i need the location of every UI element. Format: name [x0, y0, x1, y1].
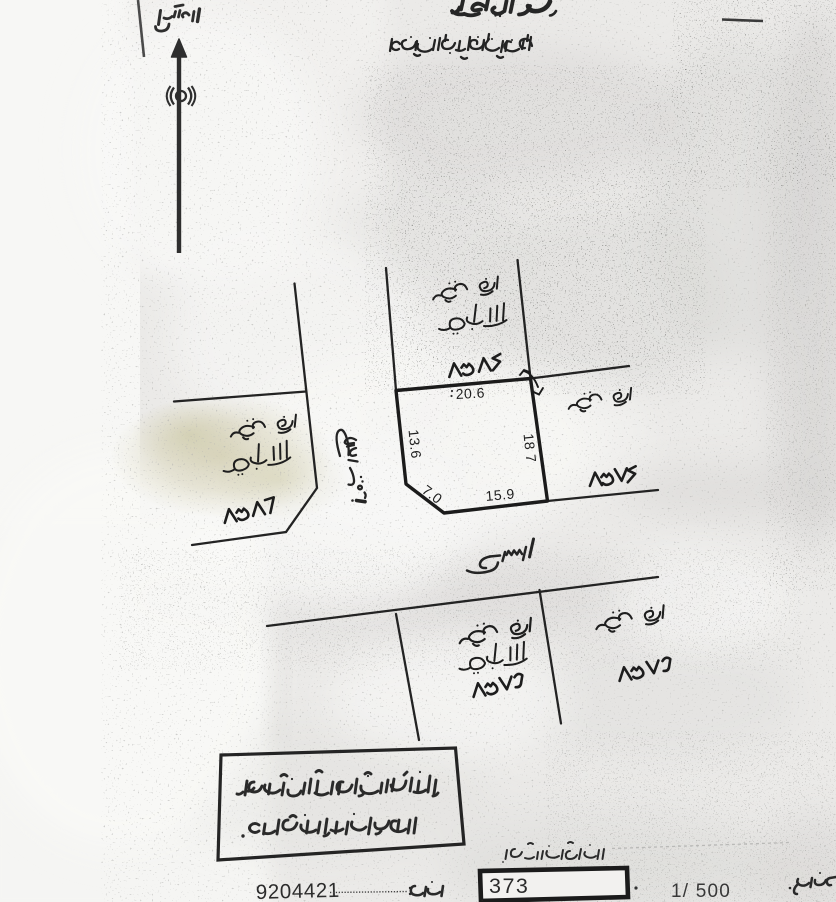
svg-text:18 7: 18 7 — [521, 433, 540, 464]
svg-text:1/ 500: 1/ 500 — [671, 881, 731, 902]
svg-text:15.9: 15.9 — [485, 486, 516, 504]
svg-text:9204421: 9204421 — [256, 879, 341, 902]
svg-text:13.6: 13.6 — [406, 429, 425, 460]
svg-text:20.6: 20.6 — [455, 384, 485, 402]
svg-text:373: 373 — [489, 874, 529, 898]
